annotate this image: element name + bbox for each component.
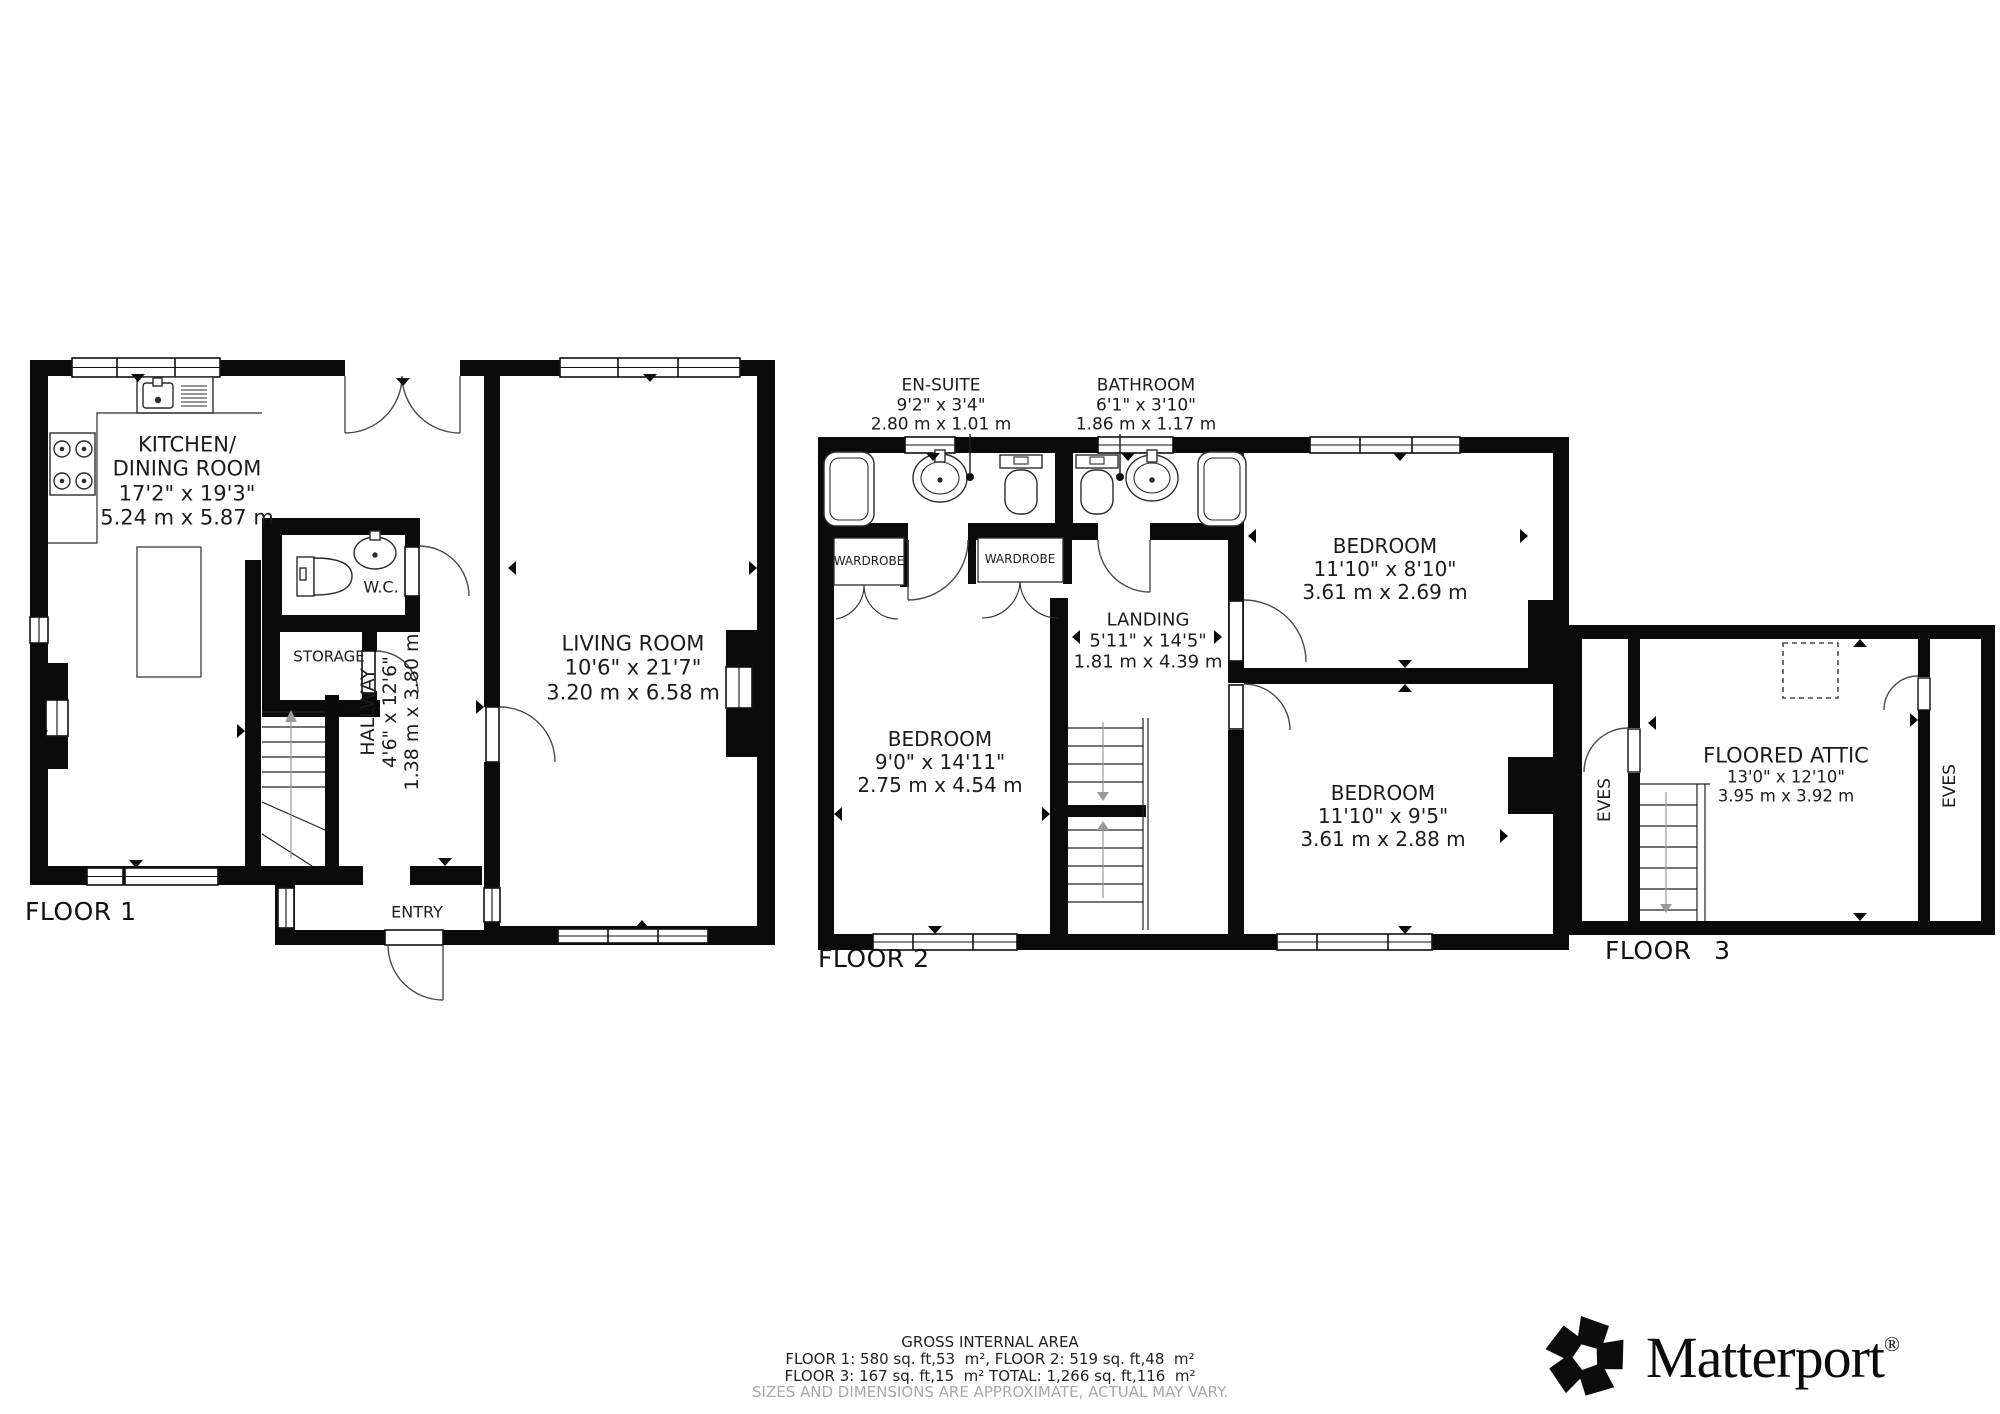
ensuite-bathtub-icon xyxy=(824,452,874,526)
room-label-entry: ENTRY xyxy=(391,904,443,923)
matterport-wordmark: Matterport® xyxy=(1646,1324,1900,1391)
kitchen-sink-unit xyxy=(137,377,213,413)
wardrobe-left-box xyxy=(834,538,904,619)
room-dimensions-metric: 1.38 m x 3.80 m xyxy=(401,633,423,790)
attic-hatch-dashed-box xyxy=(1783,643,1838,698)
room-dimensions-metric: 1.81 m x 4.39 m xyxy=(1074,652,1223,673)
room-dimensions-imperial: 11'10" x 9'5" xyxy=(1300,805,1465,828)
room-name: DINING ROOM xyxy=(100,457,274,481)
ensuite-sink-icon xyxy=(913,450,967,502)
room-dimensions-metric: 2.75 m x 4.54 m xyxy=(857,775,1022,798)
room-label-living-room: LIVING ROOM 10'6" x 21'7" 3.20 m x 6.58 … xyxy=(546,631,720,704)
floor2-walls xyxy=(818,437,1569,950)
bathroom-bathtub-icon xyxy=(1198,452,1246,526)
wc-sink-icon xyxy=(354,531,396,569)
room-dimensions-imperial: 5'11" x 14'5" xyxy=(1074,632,1223,653)
room-label-storage: STORAGE xyxy=(293,648,364,665)
floor2-stairs xyxy=(1068,718,1148,930)
room-dimensions-metric: 3.61 m x 2.88 m xyxy=(1300,829,1465,852)
room-label-eves-left: EVES xyxy=(1596,778,1616,822)
room-dimensions-imperial: 9'0" x 14'11" xyxy=(857,751,1022,774)
room-label-landing: LANDING 5'11" x 14'5" 1.81 m x 4.39 m xyxy=(1074,611,1223,674)
room-label-kitchen-dining: KITCHEN/ DINING ROOM 17'2" x 19'3" 5.24 … xyxy=(100,432,274,529)
room-label-floored-attic: FLOORED ATTIC 13'0" x 12'10" 3.95 m x 3.… xyxy=(1703,744,1869,807)
room-name: HALLWAY xyxy=(357,633,379,790)
floor3-stairs xyxy=(1640,784,1710,921)
room-dimensions-imperial: 9'2" x 3'4" xyxy=(871,396,1012,416)
room-dimensions-metric: 2.80 m x 1.01 m xyxy=(871,416,1012,436)
floorplan-page: KITCHEN/ DINING ROOM 17'2" x 19'3" 5.24 … xyxy=(0,0,2000,1414)
bathroom-sink-icon xyxy=(1126,450,1178,501)
footer-areas-line1: FLOOR 1: 580 sq. ft,53 m², FLOOR 2: 519 … xyxy=(752,1351,1228,1368)
room-label-wardrobe-right: WARDROBE xyxy=(985,553,1056,567)
room-label-bedroom-left: BEDROOM 9'0" x 14'11" 2.75 m x 4.54 m xyxy=(857,728,1022,798)
floor1-stairs xyxy=(262,710,325,866)
room-dimensions-imperial: 13'0" x 12'10" xyxy=(1703,768,1869,787)
room-name: BEDROOM xyxy=(1302,535,1467,558)
footer-disclaimer: SIZES AND DIMENSIONS ARE APPROXIMATE, AC… xyxy=(752,1384,1228,1401)
kitchen-island xyxy=(137,547,201,677)
room-name: STORAGE xyxy=(293,648,364,665)
wc-toilet-icon xyxy=(297,557,352,596)
room-label-eves-right: EVES xyxy=(1941,764,1961,808)
floor3-title: FLOOR 3 xyxy=(1605,936,1731,965)
gross-internal-area-note: GROSS INTERNAL AREA FLOOR 1: 580 sq. ft,… xyxy=(752,1334,1228,1401)
room-dimensions-metric: 3.61 m x 2.69 m xyxy=(1302,582,1467,605)
room-name: WARDROBE xyxy=(985,553,1056,567)
room-label-bathroom: BATHROOM 6'1" x 3'10" 1.86 m x 1.17 m xyxy=(1076,376,1217,435)
room-dimensions-metric: 3.20 m x 6.58 m xyxy=(546,680,720,704)
brand-name-text: Matterport xyxy=(1646,1325,1884,1390)
room-name: LANDING xyxy=(1074,611,1223,632)
room-name: BEDROOM xyxy=(857,728,1022,751)
room-name: W.C. xyxy=(363,579,398,598)
room-name: LIVING ROOM xyxy=(546,631,720,655)
room-label-wardrobe-left: WARDROBE xyxy=(834,555,905,569)
room-dimensions-metric: 1.86 m x 1.17 m xyxy=(1076,416,1217,436)
floor1-title: FLOOR 1 xyxy=(25,897,137,926)
room-dimensions-metric: 3.95 m x 3.92 m xyxy=(1703,787,1869,806)
room-label-hallway: HALLWAY 4'6" x 12'6" 1.38 m x 3.80 m xyxy=(357,633,423,790)
floor2-title: FLOOR 2 xyxy=(818,944,930,973)
stove-icon xyxy=(50,433,95,495)
room-label-bedroom-bottom: BEDROOM 11'10" x 9'5" 3.61 m x 2.88 m xyxy=(1300,782,1465,852)
room-label-bedroom-top: BEDROOM 11'10" x 8'10" 3.61 m x 2.69 m xyxy=(1302,535,1467,605)
room-name: WARDROBE xyxy=(834,555,905,569)
room-label-ensuite: EN-SUITE 9'2" x 3'4" 2.80 m x 1.01 m xyxy=(871,376,1012,435)
room-name: FLOORED ATTIC xyxy=(1703,744,1869,768)
footer-areas-line2: FLOOR 3: 167 sq. ft,15 m² TOTAL: 1,266 s… xyxy=(752,1368,1228,1385)
room-name: EN-SUITE xyxy=(871,376,1012,396)
room-name: BEDROOM xyxy=(1300,782,1465,805)
room-name: BATHROOM xyxy=(1076,376,1217,396)
room-dimensions-imperial: 11'10" x 8'10" xyxy=(1302,558,1467,581)
room-name: ENTRY xyxy=(391,904,443,923)
room-dimensions-imperial: 17'2" x 19'3" xyxy=(100,481,274,505)
ensuite-toilet-icon xyxy=(1000,455,1042,514)
room-dimensions-imperial: 4'6" x 12'6" xyxy=(379,633,401,790)
room-label-wc: W.C. xyxy=(363,579,398,598)
floorplan-drawing xyxy=(0,0,2000,1414)
room-name: KITCHEN/ xyxy=(100,432,274,456)
bathroom-toilet-icon xyxy=(1076,455,1118,514)
room-dimensions-metric: 5.24 m x 5.87 m xyxy=(100,505,274,529)
matterport-logo-icon xyxy=(1543,1314,1629,1400)
registered-trademark-symbol: ® xyxy=(1884,1332,1900,1356)
footer-title: GROSS INTERNAL AREA xyxy=(752,1334,1228,1351)
floor2-windows xyxy=(873,437,1460,950)
room-dimensions-imperial: 10'6" x 21'7" xyxy=(546,656,720,680)
room-dimensions-imperial: 6'1" x 3'10" xyxy=(1076,396,1217,416)
